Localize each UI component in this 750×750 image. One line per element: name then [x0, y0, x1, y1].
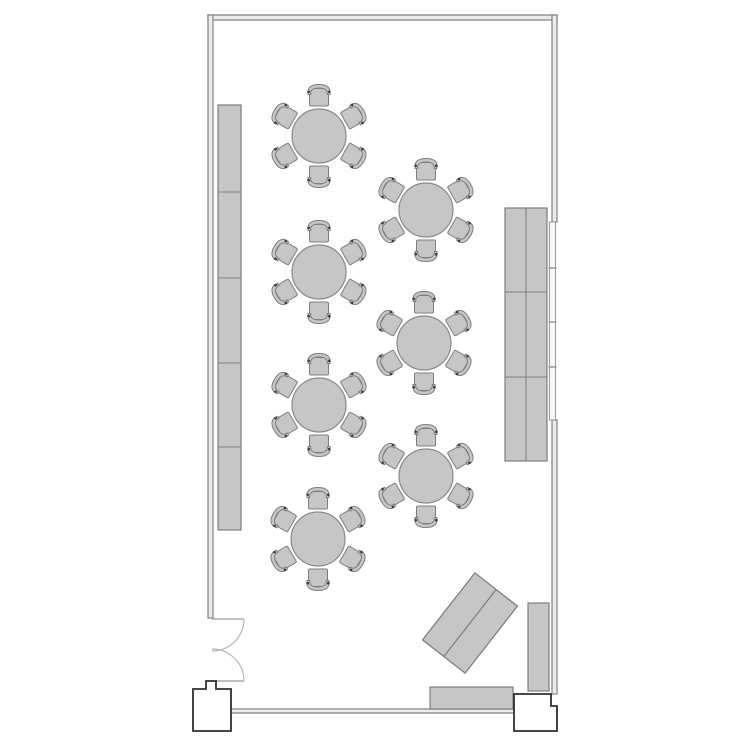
round-table	[292, 378, 346, 432]
wall-counter-left	[218, 105, 241, 530]
chair-corner-dot	[327, 582, 330, 585]
chair-corner-dot	[435, 431, 438, 434]
chair-corner-dot	[328, 91, 331, 94]
chair-corner-dot	[306, 582, 309, 585]
wall-right-upper	[552, 15, 557, 222]
chair-seat	[310, 358, 329, 376]
chair-seat	[309, 569, 328, 587]
round-table	[397, 316, 451, 370]
chair	[307, 85, 330, 107]
round-table	[292, 109, 346, 163]
round-table	[292, 245, 346, 299]
chair-corner-dot	[433, 386, 436, 389]
door-swing-arc-icon	[212, 649, 244, 681]
chair-corner-dot	[307, 315, 310, 318]
floor-plan	[0, 0, 750, 750]
round-table-group	[376, 159, 477, 262]
round-table	[399, 183, 453, 237]
chair-corner-dot	[328, 360, 331, 363]
round-table	[399, 449, 453, 503]
chair-seat	[417, 240, 436, 258]
sideboard-right	[528, 603, 549, 691]
chair	[307, 354, 330, 376]
chair	[307, 166, 330, 188]
chair	[414, 159, 437, 181]
round-table-group	[268, 488, 369, 591]
chair-seat	[417, 163, 436, 181]
round-table	[291, 512, 345, 566]
chair-corner-dot	[435, 519, 438, 522]
chair-seat	[309, 492, 328, 510]
chair	[414, 506, 437, 528]
wall-top	[208, 15, 557, 20]
wall-left	[208, 15, 213, 618]
entry-pillar-right	[514, 694, 557, 731]
chair-corner-dot	[412, 386, 415, 389]
chair-seat	[310, 302, 329, 320]
chair-corner-dot	[328, 227, 331, 230]
chair-corner-dot	[412, 298, 415, 301]
chair-corner-dot	[414, 253, 417, 256]
chair	[307, 302, 330, 324]
chair-corner-dot	[328, 179, 331, 182]
chair-corner-dot	[307, 91, 310, 94]
chair-seat	[310, 225, 329, 243]
chair-seat	[417, 429, 436, 447]
chair-corner-dot	[327, 494, 330, 497]
round-table-group	[269, 85, 370, 188]
chair-corner-dot	[328, 448, 331, 451]
round-table-group	[376, 425, 477, 528]
chair-seat	[310, 89, 329, 107]
chair-corner-dot	[307, 448, 310, 451]
door-swing-arc-icon	[212, 619, 244, 651]
chair-corner-dot	[414, 165, 417, 168]
chair-corner-dot	[435, 165, 438, 168]
chair-corner-dot	[435, 253, 438, 256]
chair-seat	[415, 296, 434, 314]
chair-corner-dot	[306, 494, 309, 497]
chair	[412, 373, 435, 395]
floor-plan-canvas	[0, 0, 750, 750]
chair-corner-dot	[414, 431, 417, 434]
chair	[414, 240, 437, 262]
chair-corner-dot	[307, 179, 310, 182]
window-right	[550, 222, 556, 420]
chair-corner-dot	[328, 315, 331, 318]
round-table-group	[269, 354, 370, 457]
chair	[306, 569, 329, 591]
chair	[306, 488, 329, 510]
chair	[307, 435, 330, 457]
entry-column-left	[193, 681, 231, 731]
chair	[414, 425, 437, 447]
diagonal-desk	[423, 573, 518, 673]
chair-seat	[310, 435, 329, 453]
credenza-bottom	[430, 687, 513, 709]
chair-seat	[310, 166, 329, 184]
chair	[307, 221, 330, 243]
chair-corner-dot	[307, 360, 310, 363]
round-table-group	[269, 221, 370, 324]
wall-right-lower	[552, 420, 557, 694]
chair-corner-dot	[307, 227, 310, 230]
chair	[412, 292, 435, 314]
chair-seat	[415, 373, 434, 391]
round-table-group	[374, 292, 475, 395]
chair-corner-dot	[433, 298, 436, 301]
chair-corner-dot	[414, 519, 417, 522]
chair-seat	[417, 506, 436, 524]
